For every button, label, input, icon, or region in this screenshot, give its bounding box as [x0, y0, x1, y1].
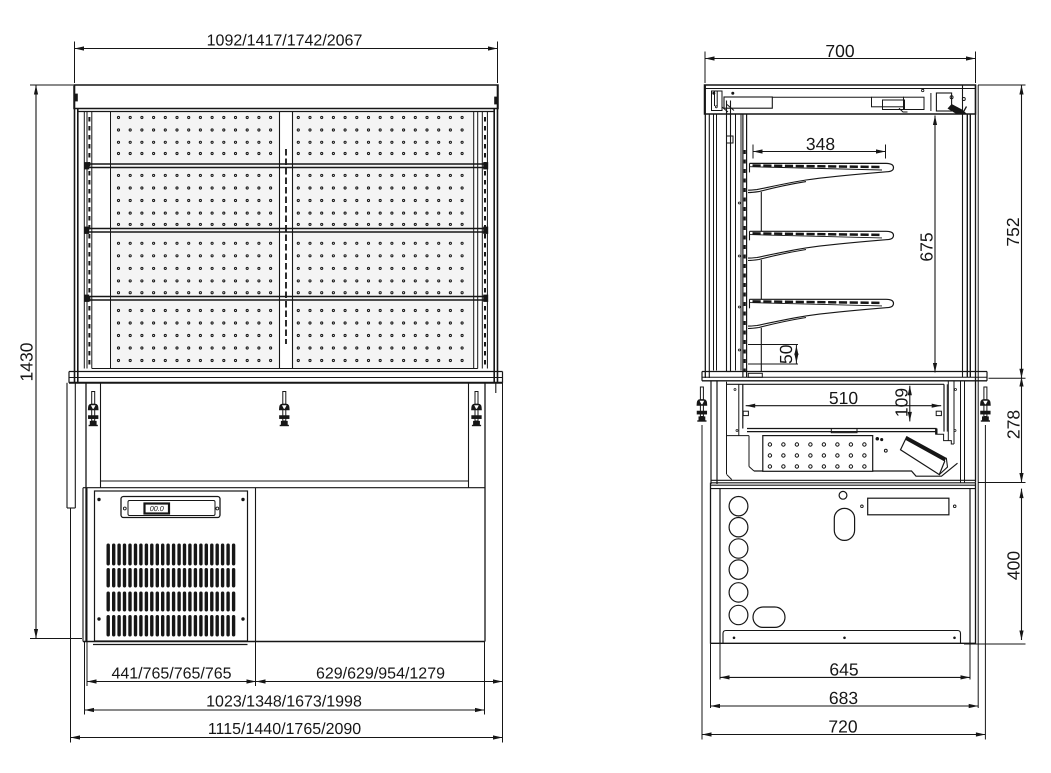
- svg-text:752: 752: [1003, 217, 1023, 246]
- svg-text:629/629/954/1279: 629/629/954/1279: [316, 665, 445, 682]
- svg-text:400: 400: [1004, 551, 1024, 580]
- svg-text:1430: 1430: [17, 342, 37, 381]
- svg-text:278: 278: [1004, 410, 1024, 439]
- svg-text:510: 510: [829, 388, 858, 408]
- svg-text:1023/1348/1673/1998: 1023/1348/1673/1998: [206, 694, 362, 711]
- svg-text:50: 50: [776, 344, 796, 364]
- svg-text:675: 675: [917, 232, 937, 261]
- svg-text:720: 720: [828, 716, 857, 736]
- svg-text:441/765/765/765: 441/765/765/765: [111, 665, 231, 682]
- svg-text:645: 645: [829, 659, 858, 679]
- svg-text:1092/1417/1742/2067: 1092/1417/1742/2067: [207, 33, 363, 50]
- svg-text:00.0: 00.0: [150, 504, 164, 513]
- svg-text:683: 683: [829, 688, 858, 708]
- svg-text:1115/1440/1765/2090: 1115/1440/1765/2090: [208, 721, 361, 738]
